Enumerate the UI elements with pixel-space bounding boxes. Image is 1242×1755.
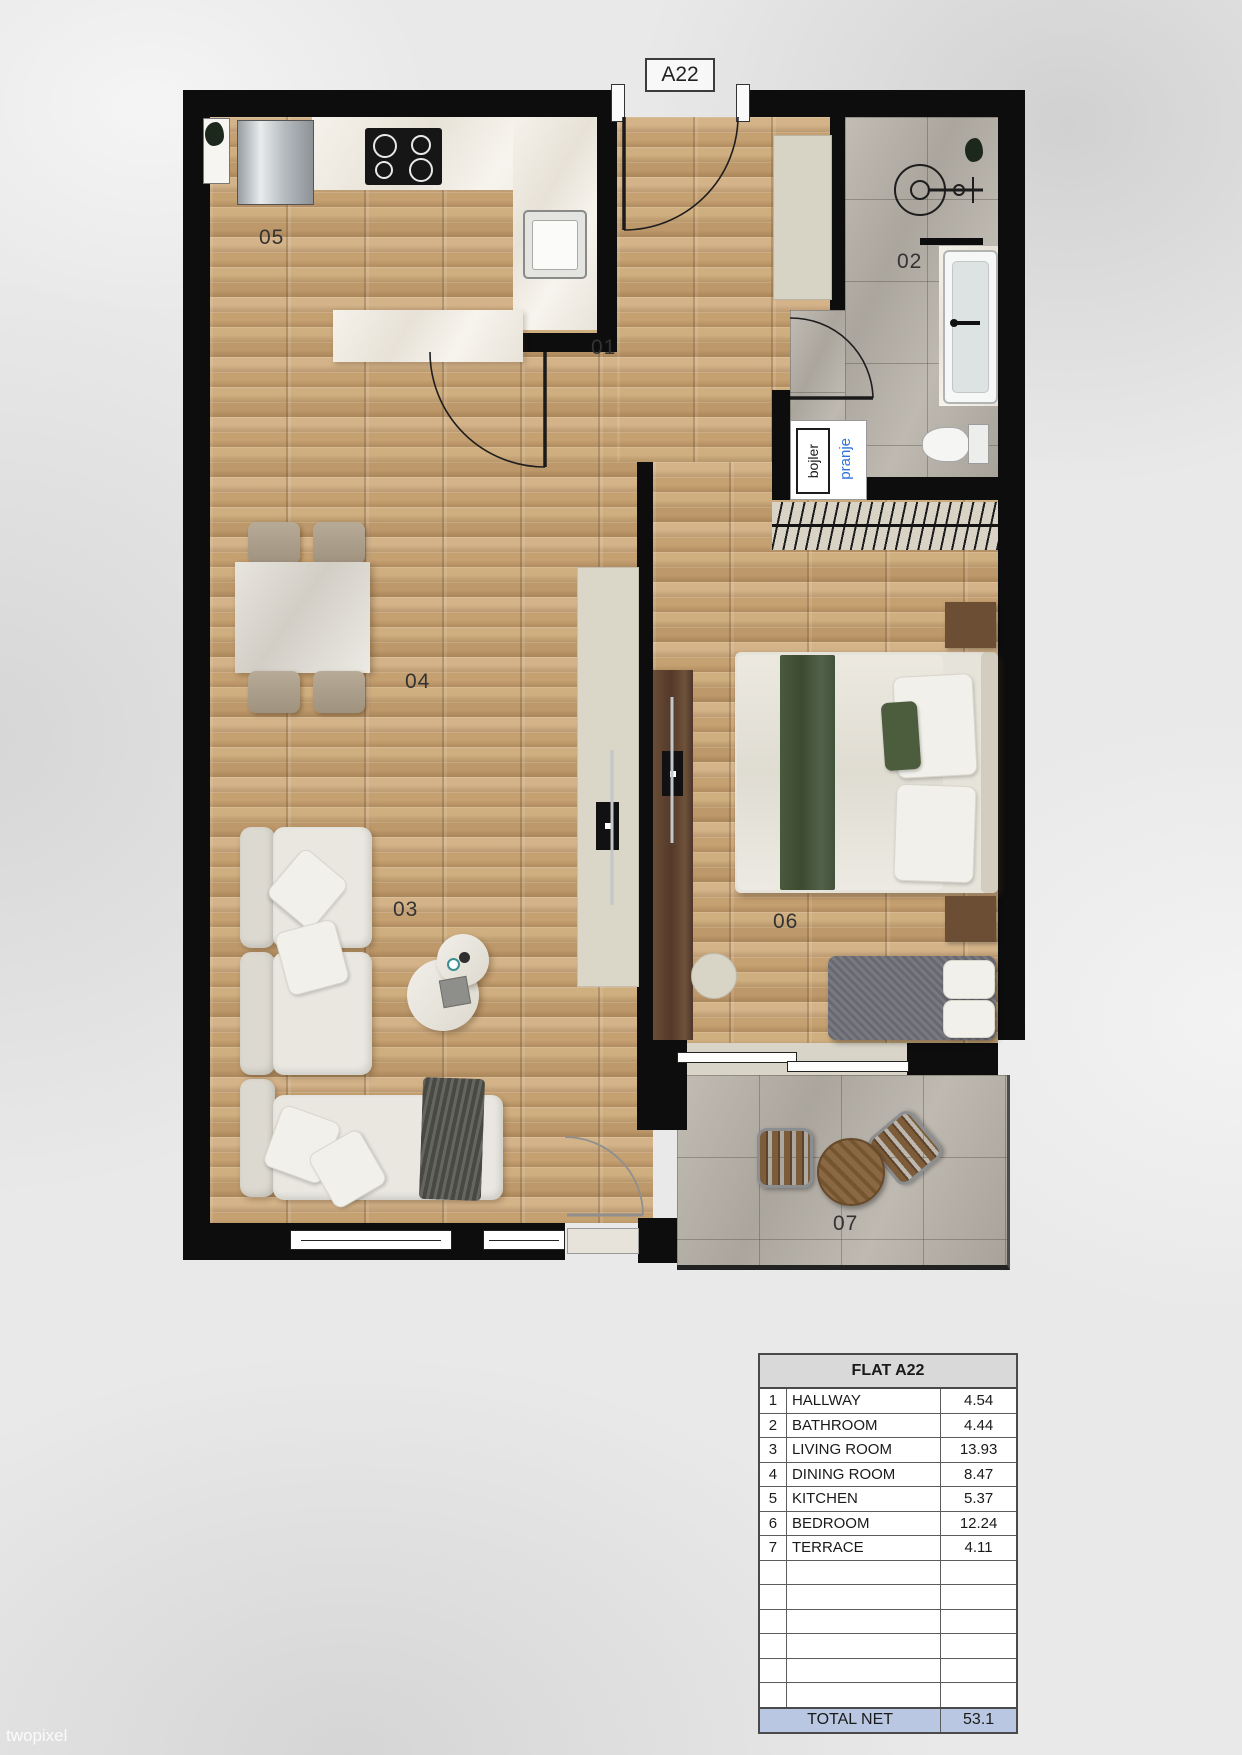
- green-pillow: [881, 701, 922, 771]
- table-row-empty: [759, 1560, 1017, 1585]
- bed-pillow: [893, 784, 976, 884]
- plant-icon: [205, 122, 224, 146]
- room-label-kitchen: 05: [259, 226, 284, 250]
- room-label-dining: 04: [405, 670, 430, 694]
- table-decor: [447, 958, 460, 971]
- bathtub-inner: [952, 261, 989, 393]
- nightstand: [945, 896, 996, 942]
- table-total-row: TOTAL NET 53.1: [759, 1708, 1017, 1734]
- kitchen-sink: [523, 210, 587, 279]
- table-decor: [459, 952, 470, 963]
- shower-partition: [920, 238, 983, 245]
- wall: [737, 90, 1025, 117]
- wall-divider-stub: [637, 1030, 687, 1130]
- daybed-pillow: [943, 960, 995, 999]
- door-jamb: [736, 84, 750, 122]
- dining-chair: [313, 522, 365, 564]
- wall-terrace-left: [638, 1218, 677, 1263]
- total-value: 53.1: [941, 1708, 1017, 1734]
- wall: [183, 90, 617, 117]
- toilet-tank: [968, 424, 989, 464]
- table-row: 5KITCHEN5.37: [759, 1487, 1017, 1512]
- burner-icon: [409, 158, 433, 182]
- fridge: [237, 120, 314, 205]
- kitchen-island: [333, 310, 523, 362]
- table-row-empty: [759, 1683, 1017, 1708]
- wardrobe-rail: [772, 524, 998, 527]
- table-decor: [439, 976, 471, 1008]
- laundry-label-wrap: pranje: [831, 426, 859, 492]
- wall: [183, 90, 210, 1260]
- tv-console-living: [577, 567, 639, 987]
- wall-bedroom-bottom: [907, 1043, 998, 1075]
- room-label-terrace: 07: [833, 1212, 858, 1236]
- burner-icon: [375, 161, 393, 179]
- dining-table: [235, 562, 370, 673]
- wall-kitchen-hall: [597, 117, 617, 335]
- table-row-empty: [759, 1609, 1017, 1634]
- wall: [998, 90, 1025, 1040]
- area-table: FLAT A22 1HALLWAY4.54 2BATHROOM4.44 3LIV…: [758, 1353, 1018, 1734]
- table-row: 6BEDROOM12.24: [759, 1511, 1017, 1536]
- plant-icon: [965, 138, 983, 162]
- daybed-pillow: [943, 1000, 995, 1038]
- wall-living-bedroom-divider: [637, 462, 653, 1042]
- area-table-title: FLAT A22: [759, 1354, 1017, 1388]
- burner-icon: [411, 135, 431, 155]
- watermark: twopixel: [6, 1726, 67, 1746]
- terrace-door-opening: [567, 1228, 639, 1254]
- bed-headboard: [981, 652, 998, 893]
- room-label-hallway: 01: [591, 336, 616, 360]
- sink-basin: [532, 220, 578, 270]
- laundry-label: pranje: [837, 438, 854, 480]
- floor-plan-page: A22: [0, 0, 1242, 1755]
- table-row: 4DINING ROOM8.47: [759, 1462, 1017, 1487]
- room-label-bedroom: 06: [773, 910, 798, 934]
- cooktop: [365, 128, 442, 185]
- tv-icon: [596, 802, 619, 850]
- bed-runner: [780, 655, 835, 890]
- window: [483, 1230, 565, 1250]
- terrace-chair: [757, 1128, 813, 1188]
- dining-chair: [248, 671, 300, 713]
- room-label-living: 03: [393, 898, 418, 922]
- tv-icon: [662, 751, 683, 796]
- sliding-door-terrace: [677, 1052, 797, 1063]
- sofa-back: [240, 952, 275, 1075]
- burner-icon: [373, 134, 397, 158]
- table-row-empty: [759, 1658, 1017, 1683]
- dining-chair: [248, 522, 300, 564]
- table-row-empty: [759, 1585, 1017, 1610]
- total-label: TOTAL NET: [759, 1708, 941, 1734]
- toilet: [922, 427, 970, 462]
- dining-chair: [313, 671, 365, 713]
- round-side-table: [691, 953, 737, 999]
- bathtub: [943, 250, 998, 404]
- hallway-closet: [773, 135, 832, 300]
- unit-label: A22: [661, 63, 698, 87]
- unit-label-box: A22: [645, 58, 715, 92]
- table-row: 1HALLWAY4.54: [759, 1388, 1017, 1413]
- wardrobe-panel-bedroom: [653, 670, 693, 1040]
- table-row: 2BATHROOM4.44: [759, 1413, 1017, 1438]
- boiler-box: bojler: [796, 428, 830, 494]
- terrace-table: [817, 1138, 885, 1206]
- throw-blanket: [419, 1077, 485, 1201]
- table-row: 7TERRACE4.11: [759, 1536, 1017, 1561]
- wall-hall-bathroom: [830, 117, 845, 310]
- table-row-empty: [759, 1634, 1017, 1659]
- sliding-door-terrace: [787, 1061, 909, 1072]
- door-jamb: [611, 84, 625, 122]
- table-row: 3LIVING ROOM13.93: [759, 1438, 1017, 1463]
- window: [290, 1230, 452, 1250]
- room-label-bathroom: 02: [897, 250, 922, 274]
- sofa-back: [240, 1079, 275, 1197]
- boiler-label: bojler: [805, 444, 821, 478]
- apartment-plan: bojler pranje: [183, 90, 1025, 1265]
- nightstand: [945, 602, 996, 648]
